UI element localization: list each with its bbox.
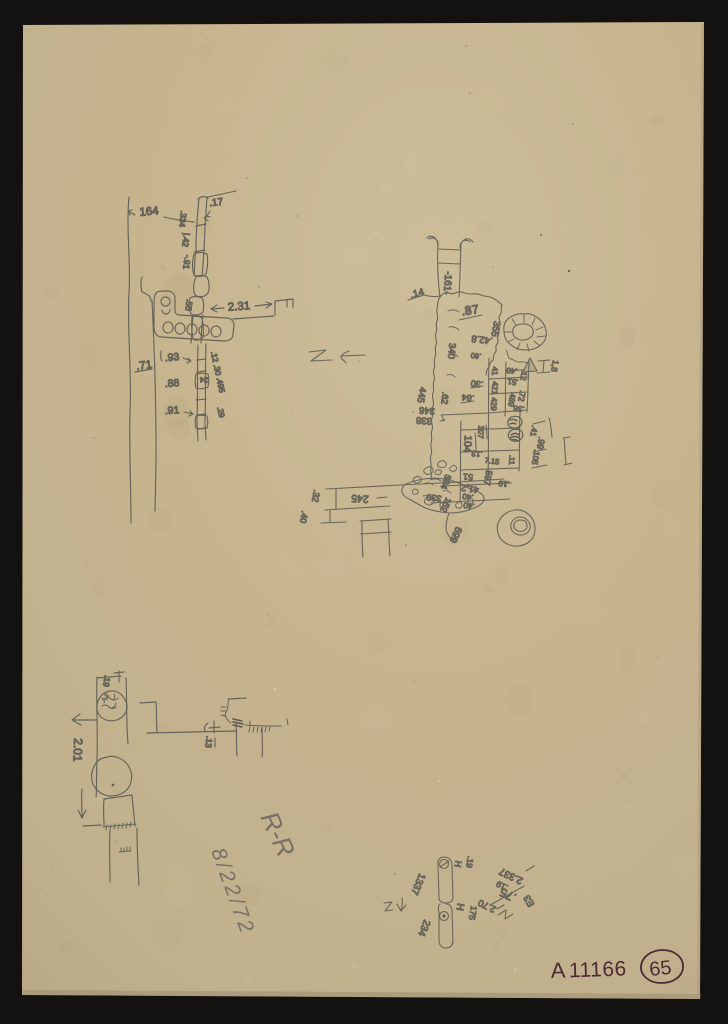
svg-text:.13: .13: [203, 736, 214, 749]
svg-text:.51: .51: [507, 377, 519, 387]
svg-text:.99: .99: [535, 436, 547, 450]
svg-text:-.91: -.91: [181, 254, 193, 270]
svg-text:24: 24: [200, 375, 209, 384]
svg-text:429: 429: [489, 397, 498, 411]
svg-text:.38: .38: [513, 404, 525, 414]
svg-text:.40: .40: [298, 510, 310, 524]
svg-text:346: 346: [419, 404, 436, 416]
svg-text:164: 164: [139, 205, 160, 219]
svg-text:245: 245: [351, 492, 369, 505]
svg-text:2.31: 2.31: [227, 300, 250, 314]
svg-text:.93: .93: [164, 351, 180, 364]
svg-text:.91: .91: [164, 404, 180, 417]
svg-text:.11: .11: [507, 455, 517, 466]
svg-text:.40: .40: [462, 500, 475, 511]
svg-text:338: 338: [416, 414, 433, 426]
svg-text:421: 421: [490, 381, 499, 395]
svg-text:.19: .19: [464, 855, 476, 869]
svg-text:.334: .334: [177, 210, 189, 228]
svg-text:.40: .40: [506, 366, 518, 376]
svg-text:.32: .32: [310, 489, 322, 503]
svg-text:.55: .55: [183, 299, 194, 312]
svg-text:|.42: |.42: [180, 232, 192, 247]
svg-text:330: 330: [426, 492, 442, 504]
svg-text:2.01: 2.01: [70, 738, 85, 762]
svg-text:.40: .40: [461, 491, 474, 502]
svg-text:.60: .60: [470, 351, 481, 361]
svg-text:104: 104: [461, 435, 474, 453]
svg-text:340: 340: [445, 343, 457, 360]
svg-text:107: 107: [476, 425, 486, 439]
svg-text:.19: .19: [498, 479, 510, 489]
svg-text:-161-: -161-: [441, 271, 454, 295]
svg-text:A11166: A11166: [550, 955, 627, 983]
svg-text:.88: .88: [164, 377, 180, 390]
svg-text:1,8: 1,8: [549, 359, 561, 373]
svg-text:65: 65: [648, 957, 672, 981]
svg-text:41: 41: [490, 366, 499, 376]
svg-text:.17: .17: [209, 197, 224, 209]
svg-text:.19: .19: [101, 674, 113, 688]
svg-text:.62: .62: [439, 391, 450, 404]
